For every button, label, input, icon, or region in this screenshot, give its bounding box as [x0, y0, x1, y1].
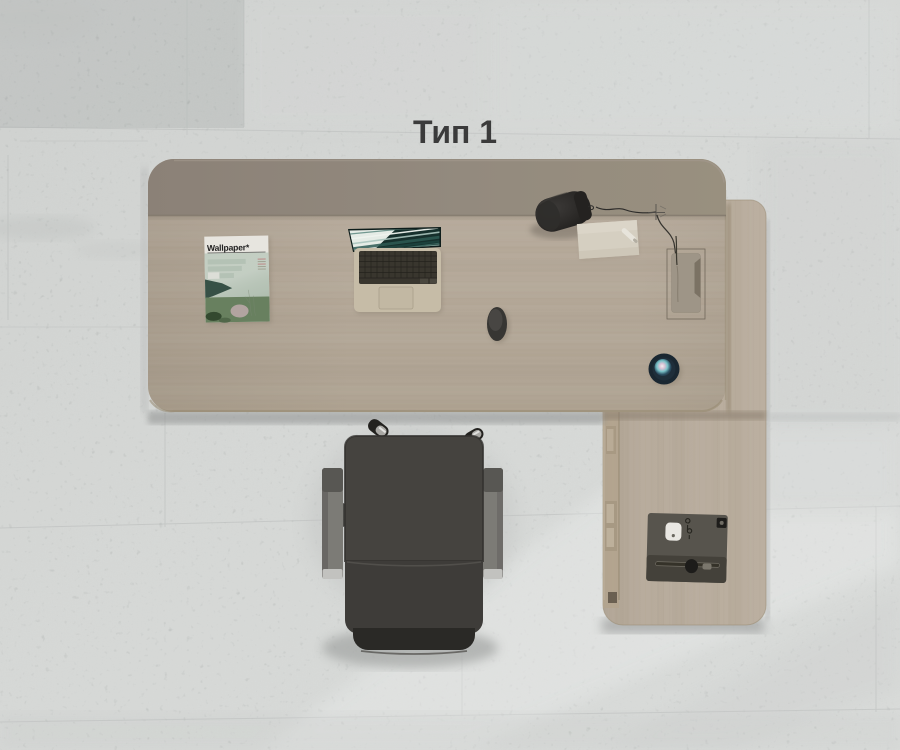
svg-text:Wallpaper*: Wallpaper* — [207, 242, 250, 253]
svg-text:Тип 1: Тип 1 — [413, 114, 497, 150]
